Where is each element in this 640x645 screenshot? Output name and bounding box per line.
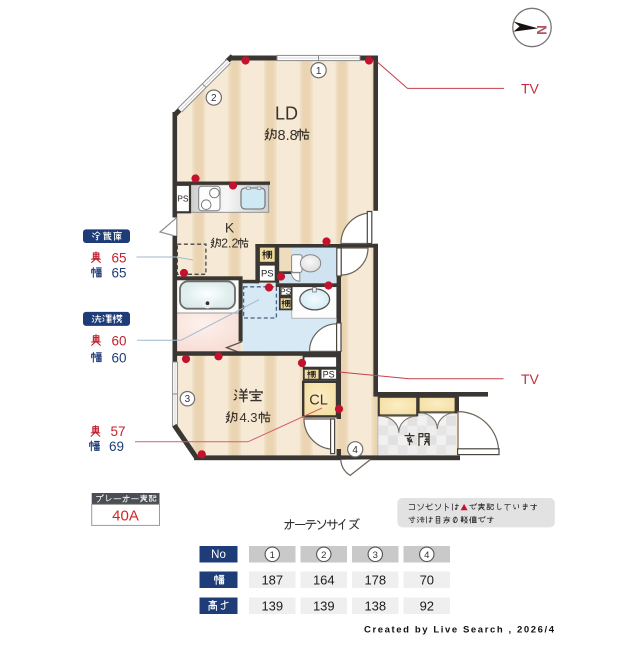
svg-text:CL: CL	[309, 393, 328, 409]
svg-text:3: 3	[373, 550, 378, 561]
svg-text:2: 2	[321, 550, 326, 561]
svg-text:60: 60	[111, 350, 126, 365]
svg-text:PS: PS	[177, 194, 189, 204]
svg-text:40A: 40A	[112, 508, 139, 525]
svg-text:92: 92	[420, 599, 434, 614]
svg-text:69: 69	[109, 439, 124, 454]
svg-text:2: 2	[211, 93, 217, 104]
svg-text:164: 164	[313, 573, 335, 588]
svg-text:TV: TV	[521, 371, 540, 387]
svg-text:70: 70	[420, 573, 434, 588]
svg-text:N: N	[534, 25, 549, 35]
svg-text:2.2: 2.2	[221, 237, 238, 251]
svg-text:TV: TV	[521, 81, 540, 97]
svg-text:4: 4	[424, 550, 429, 561]
svg-text:57: 57	[110, 424, 125, 439]
svg-text:4.3: 4.3	[239, 410, 257, 425]
svg-text:187: 187	[261, 573, 283, 588]
svg-text:139: 139	[261, 599, 283, 614]
svg-text:139: 139	[313, 599, 335, 614]
svg-text:65: 65	[111, 251, 126, 266]
svg-text:65: 65	[111, 266, 126, 281]
svg-text:No: No	[211, 549, 226, 561]
svg-text:LD: LD	[275, 104, 298, 124]
svg-text:Created by Live Search , 2026/: Created by Live Search , 2026/4	[364, 625, 556, 636]
svg-text:1: 1	[270, 550, 275, 561]
svg-text:PS: PS	[280, 286, 292, 296]
svg-text:K: K	[225, 220, 235, 236]
svg-text:PS: PS	[261, 269, 274, 280]
svg-text:4: 4	[352, 445, 358, 456]
svg-text:138: 138	[364, 599, 386, 614]
svg-text:PS: PS	[323, 369, 335, 379]
svg-text:1: 1	[316, 66, 322, 77]
svg-text:8.8: 8.8	[278, 128, 298, 144]
svg-text:3: 3	[185, 394, 191, 405]
svg-text:178: 178	[364, 573, 386, 588]
svg-text:60: 60	[111, 333, 126, 348]
